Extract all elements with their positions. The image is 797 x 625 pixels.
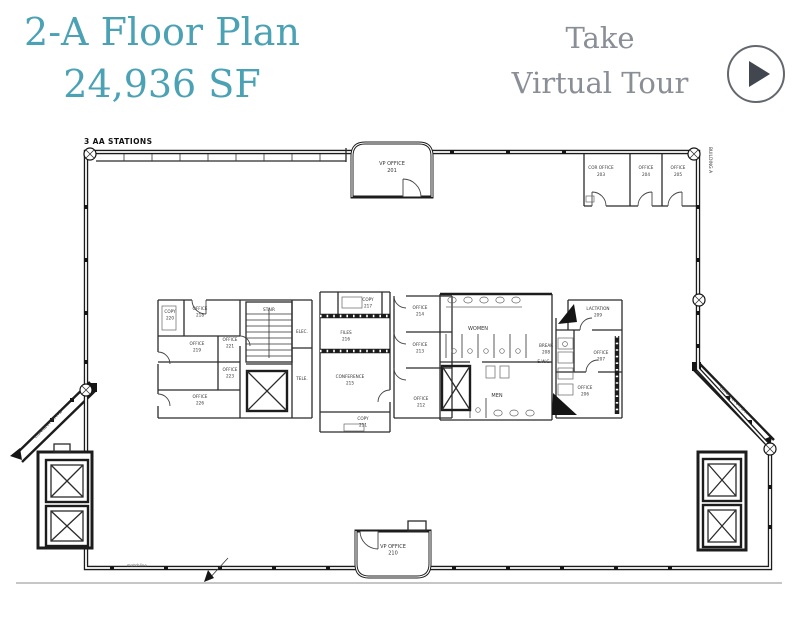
room-label-220: COPY220 [164,309,176,321]
room-label-ewc: E.W.C. [537,359,550,364]
core-restrooms-block [440,294,552,420]
room-label-stair: STAIR [263,307,275,312]
room-label-204: OFFICE204 [639,165,654,177]
room-label-226: OFFICE226 [193,394,208,406]
room-label-206: OFFICE206 [578,385,593,397]
room-label-209: LACTATION209 [586,306,609,318]
elevator-bank-left [38,444,92,548]
room-label-tele: TELE. [295,376,308,381]
core-center-block [320,292,452,432]
room-label-211: COPY211 [357,416,369,428]
core-left-block [158,300,312,418]
elevator-bank-right [698,452,746,550]
room-label-men: MEN [491,393,502,399]
room-label-208: BREAK208 [539,343,553,355]
room-label-elec: ELEC. [296,329,308,334]
stations-label: 3 AA STATIONS [84,137,152,146]
room-label-212: OFFICE212 [414,396,429,408]
room-label-216: FILES216 [340,330,352,342]
room-label-218: OFFICE218 [193,306,208,318]
exterior-walls [86,152,770,568]
floor-plan: 3 AA STATIONS BUILDING A CONNECTOR A-B C… [0,0,797,625]
room-label-205: OFFICE205 [671,165,686,177]
plan-labels: 3 AA STATIONS BUILDING A CONNECTOR A-B C… [33,137,750,568]
room-label-221: OFFICE221 [223,337,238,349]
room-label-223: OFFICE223 [223,367,238,379]
room-label-215: CONFERENCE215 [336,374,365,386]
column-markers [80,148,776,570]
room-label-203: COR OFFICE203 [588,165,614,177]
room-label-women: WOMEN [468,326,488,332]
core-right-block [552,300,622,418]
room-label-219: OFFICE219 [190,341,205,353]
offices-top-right [584,154,698,206]
room-label-214: OFFICE214 [413,305,428,317]
building-label: BUILDING A [707,147,713,174]
room-label-213: OFFICE213 [413,342,428,354]
room-label-217: COPY217 [362,297,374,309]
matchline-label: matchline [127,563,147,568]
